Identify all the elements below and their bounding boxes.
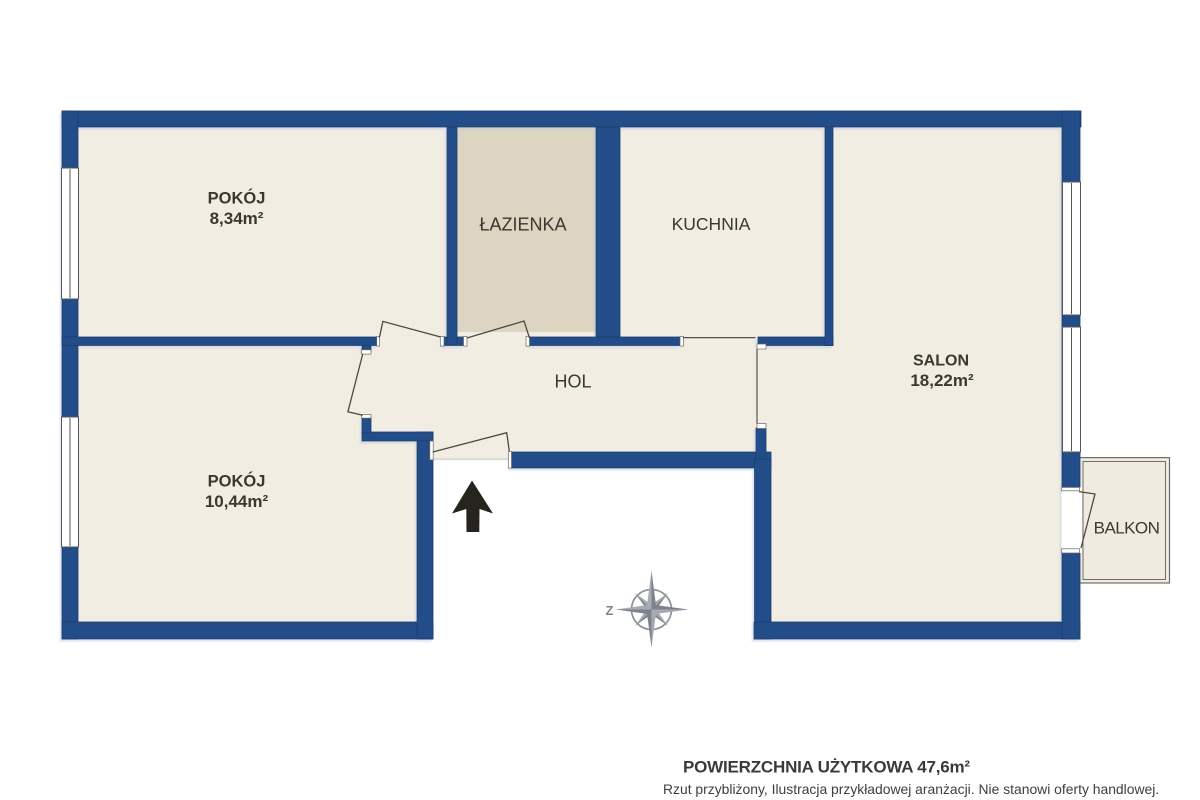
svg-text:SALON: SALON [913,353,969,370]
svg-text:POWIERZCHNIA UŻYTKOWA 47,6m²: POWIERZCHNIA UŻYTKOWA 47,6m² [683,758,970,777]
svg-text:Z: Z [606,603,614,618]
svg-text:HOL: HOL [554,372,591,392]
svg-text:Rzut przybliżony, Ilustracja p: Rzut przybliżony, Ilustracja przykładowe… [663,781,1159,797]
svg-text:POKÓJ: POKÓJ [208,472,266,491]
svg-text:BALKON: BALKON [1094,519,1160,538]
svg-text:POKÓJ: POKÓJ [208,189,266,208]
svg-text:KUCHNIA: KUCHNIA [672,214,751,234]
svg-text:ŁAZIENKA: ŁAZIENKA [479,215,566,235]
svg-text:10,44m²: 10,44m² [205,492,269,511]
svg-text:18,22m²: 18,22m² [910,371,974,390]
svg-text:8,34m²: 8,34m² [210,209,264,228]
